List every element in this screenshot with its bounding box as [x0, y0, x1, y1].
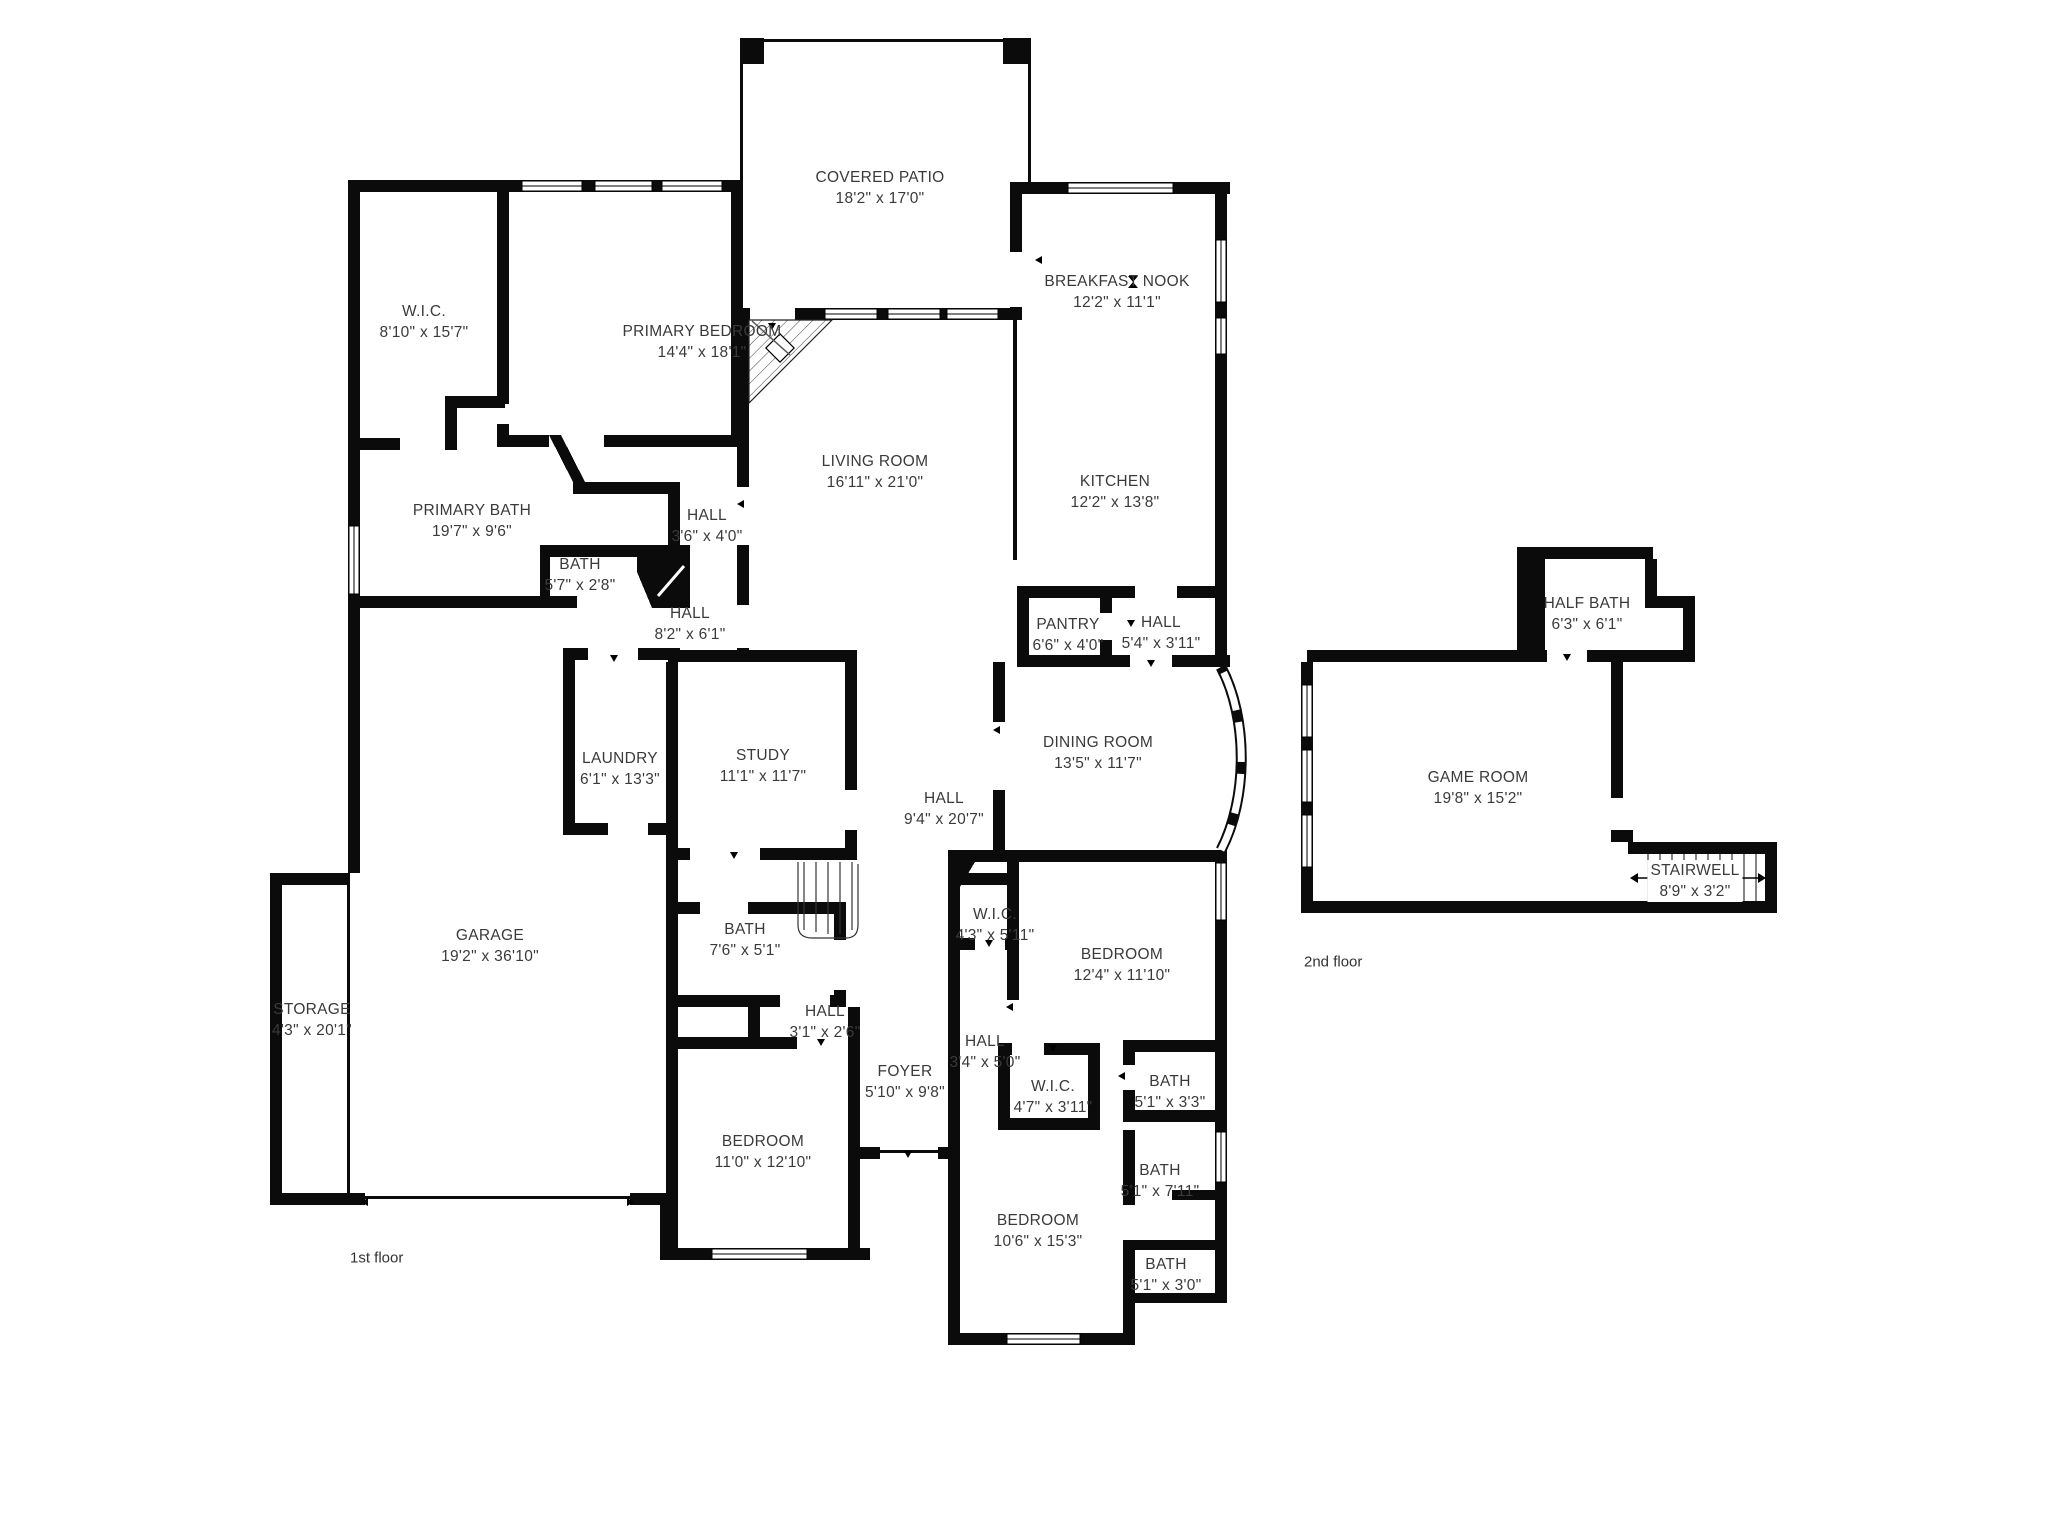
room-name: W.I.C.: [956, 904, 1035, 925]
room-name: BEDROOM: [994, 1210, 1083, 1231]
room-label-game-room: GAME ROOM19'8" x 15'2": [1428, 767, 1529, 809]
room-dims: 18'2" x 17'0": [815, 188, 944, 209]
room-name: PRIMARY BATH: [413, 500, 531, 521]
room-dims: 9'4" x 20'7": [904, 809, 984, 830]
room-label-bath-a: BATH5'7" x 2'8": [544, 554, 615, 596]
room-label-half-bath: HALF BATH6'3" x 6'1": [1544, 593, 1631, 635]
room-dims: 12'2" x 11'1": [1044, 292, 1189, 313]
room-dims: 8'9" x 3'2": [1650, 881, 1739, 902]
room-name: GARAGE: [441, 925, 539, 946]
caption-second-floor: 2nd floor: [1304, 954, 1362, 971]
room-label-breakfast-nook: BREAKFAST NOOK12'2" x 11'1": [1044, 271, 1189, 313]
room-label-wic-c: W.I.C.4'7" x 3'11": [1014, 1076, 1093, 1118]
room-name: BATH: [709, 919, 780, 940]
room-name: GAME ROOM: [1428, 767, 1529, 788]
room-dims: 19'7" x 9'6": [413, 521, 531, 542]
room-label-hall-c: HALL5'4" x 3'11": [1122, 612, 1201, 654]
room-dims: 6'3" x 6'1": [1544, 614, 1631, 635]
room-dims: 4'3" x 20'1": [272, 1020, 352, 1041]
room-dims: 8'10" x 15'7": [380, 322, 469, 343]
room-dims: 6'6" x 4'0": [1032, 635, 1103, 656]
room-dims: 5'4" x 3'11": [1122, 633, 1201, 654]
room-dims: 12'4" x 11'10": [1074, 965, 1171, 986]
room-label-foyer: FOYER5'10" x 9'8": [865, 1061, 945, 1103]
room-label-storage: STORAGE4'3" x 20'1": [272, 999, 352, 1041]
room-label-living-room: LIVING ROOM16'11" x 21'0": [822, 451, 929, 493]
room-label-wic-b: W.I.C.4'3" x 5'11": [956, 904, 1035, 946]
room-name: STUDY: [720, 745, 807, 766]
room-name: HALL: [654, 603, 725, 624]
room-name: BATH: [1130, 1254, 1201, 1275]
room-name: HALL: [949, 1031, 1020, 1052]
room-label-bedroom-a: BEDROOM12'4" x 11'10": [1074, 944, 1171, 986]
room-name: STORAGE: [272, 999, 352, 1020]
room-label-bedroom-b: BEDROOM11'0" x 12'10": [715, 1131, 812, 1173]
room-name: DINING ROOM: [1043, 732, 1153, 753]
room-dims: 3'4" x 5'0": [949, 1052, 1020, 1073]
room-label-pantry: PANTRY6'6" x 4'0": [1032, 614, 1103, 656]
room-name: W.I.C.: [1014, 1076, 1093, 1097]
bay-window: [1221, 667, 1241, 850]
room-name: LAUNDRY: [580, 748, 660, 769]
room-name: PANTRY: [1032, 614, 1103, 635]
room-dims: 11'1" x 11'7": [720, 766, 807, 787]
room-label-hall-e: HALL3'1" x 2'6": [789, 1001, 860, 1043]
windows-second-floor: [1302, 685, 1312, 867]
room-label-study: STUDY11'1" x 11'7": [720, 745, 807, 787]
room-dims: 5'1" x 3'0": [1130, 1275, 1201, 1296]
room-dims: 16'11" x 21'0": [822, 472, 929, 493]
room-dims: 5'10" x 9'8": [865, 1082, 945, 1103]
room-name: HALL: [904, 788, 984, 809]
room-label-covered-patio: COVERED PATIO18'2" x 17'0": [815, 167, 944, 209]
room-dims: 11'0" x 12'10": [715, 1152, 812, 1173]
room-dims: 19'8" x 15'2": [1428, 788, 1529, 809]
room-name: COVERED PATIO: [815, 167, 944, 188]
room-name: BATH: [1121, 1160, 1200, 1181]
room-label-bath-e: BATH5'1" x 3'0": [1130, 1254, 1201, 1296]
room-dims: 5'7" x 2'8": [544, 575, 615, 596]
room-label-hall-d: HALL9'4" x 20'7": [904, 788, 984, 830]
room-name: W.I.C.: [380, 301, 469, 322]
room-name: HALL: [1122, 612, 1201, 633]
room-name: LIVING ROOM: [822, 451, 929, 472]
room-label-bath-d: BATH5'1" x 7'11": [1121, 1160, 1200, 1202]
walls-second-floor: [1301, 547, 1777, 913]
room-name: BREAKFAST NOOK: [1044, 271, 1189, 292]
room-dims: 4'7" x 3'11": [1014, 1097, 1093, 1118]
stairs-first-floor: [798, 862, 858, 938]
room-label-primary-bedroom: PRIMARY BEDROOM14'4" x 18'1": [623, 321, 782, 363]
room-name: KITCHEN: [1071, 471, 1160, 492]
room-dims: 12'2" x 13'8": [1071, 492, 1160, 513]
room-label-wic-primary: W.I.C.8'10" x 15'7": [380, 301, 469, 343]
room-dims: 3'1" x 2'6": [789, 1022, 860, 1043]
room-label-bath-b: BATH7'6" x 5'1": [709, 919, 780, 961]
room-name: BATH: [544, 554, 615, 575]
room-dims: 6'1" x 13'3": [580, 769, 660, 790]
room-name: BEDROOM: [715, 1131, 812, 1152]
room-name: STAIRWELL: [1650, 860, 1739, 881]
room-label-stairwell: STAIRWELL8'9" x 3'2": [1647, 860, 1742, 902]
room-dims: 4'3" x 5'11": [956, 925, 1035, 946]
room-dims: 10'6" x 15'3": [994, 1231, 1083, 1252]
room-name: HALL: [789, 1001, 860, 1022]
room-name: PRIMARY BEDROOM: [623, 321, 782, 342]
room-label-hall-f: HALL3'4" x 5'0": [949, 1031, 1020, 1073]
room-dims: 19'2" x 36'10": [441, 946, 539, 967]
room-dims: 8'2" x 6'1": [654, 624, 725, 645]
floorplan-page: COVERED PATIO18'2" x 17'0" BREAKFAST NOO…: [0, 0, 2048, 1536]
room-label-laundry: LAUNDRY6'1" x 13'3": [580, 748, 660, 790]
room-dims: 13'5" x 11'7": [1043, 753, 1153, 774]
caption-first-floor: 1st floor: [350, 1250, 403, 1267]
room-dims: 5'1" x 7'11": [1121, 1181, 1200, 1202]
room-label-primary-bath: PRIMARY BATH19'7" x 9'6": [413, 500, 531, 542]
room-dims: 5'1" x 3'3": [1134, 1092, 1205, 1113]
room-label-hall-b: HALL8'2" x 6'1": [654, 603, 725, 645]
room-name: BEDROOM: [1074, 944, 1171, 965]
room-name: FOYER: [865, 1061, 945, 1082]
room-dims: 3'6" x 4'0": [671, 526, 742, 547]
room-name: HALL: [671, 505, 742, 526]
room-label-kitchen: KITCHEN12'2" x 13'8": [1071, 471, 1160, 513]
room-dims: 7'6" x 5'1": [709, 940, 780, 961]
room-label-garage: GARAGE19'2" x 36'10": [441, 925, 539, 967]
room-name: BATH: [1134, 1071, 1205, 1092]
room-dims: 14'4" x 18'1": [623, 342, 782, 363]
room-label-bedroom-c: BEDROOM10'6" x 15'3": [994, 1210, 1083, 1252]
room-name: HALF BATH: [1544, 593, 1631, 614]
room-label-dining-room: DINING ROOM13'5" x 11'7": [1043, 732, 1153, 774]
room-label-bath-c: BATH5'1" x 3'3": [1134, 1071, 1205, 1113]
floorplan-drawing: [0, 0, 2048, 1536]
room-label-hall-a: HALL3'6" x 4'0": [671, 505, 742, 547]
